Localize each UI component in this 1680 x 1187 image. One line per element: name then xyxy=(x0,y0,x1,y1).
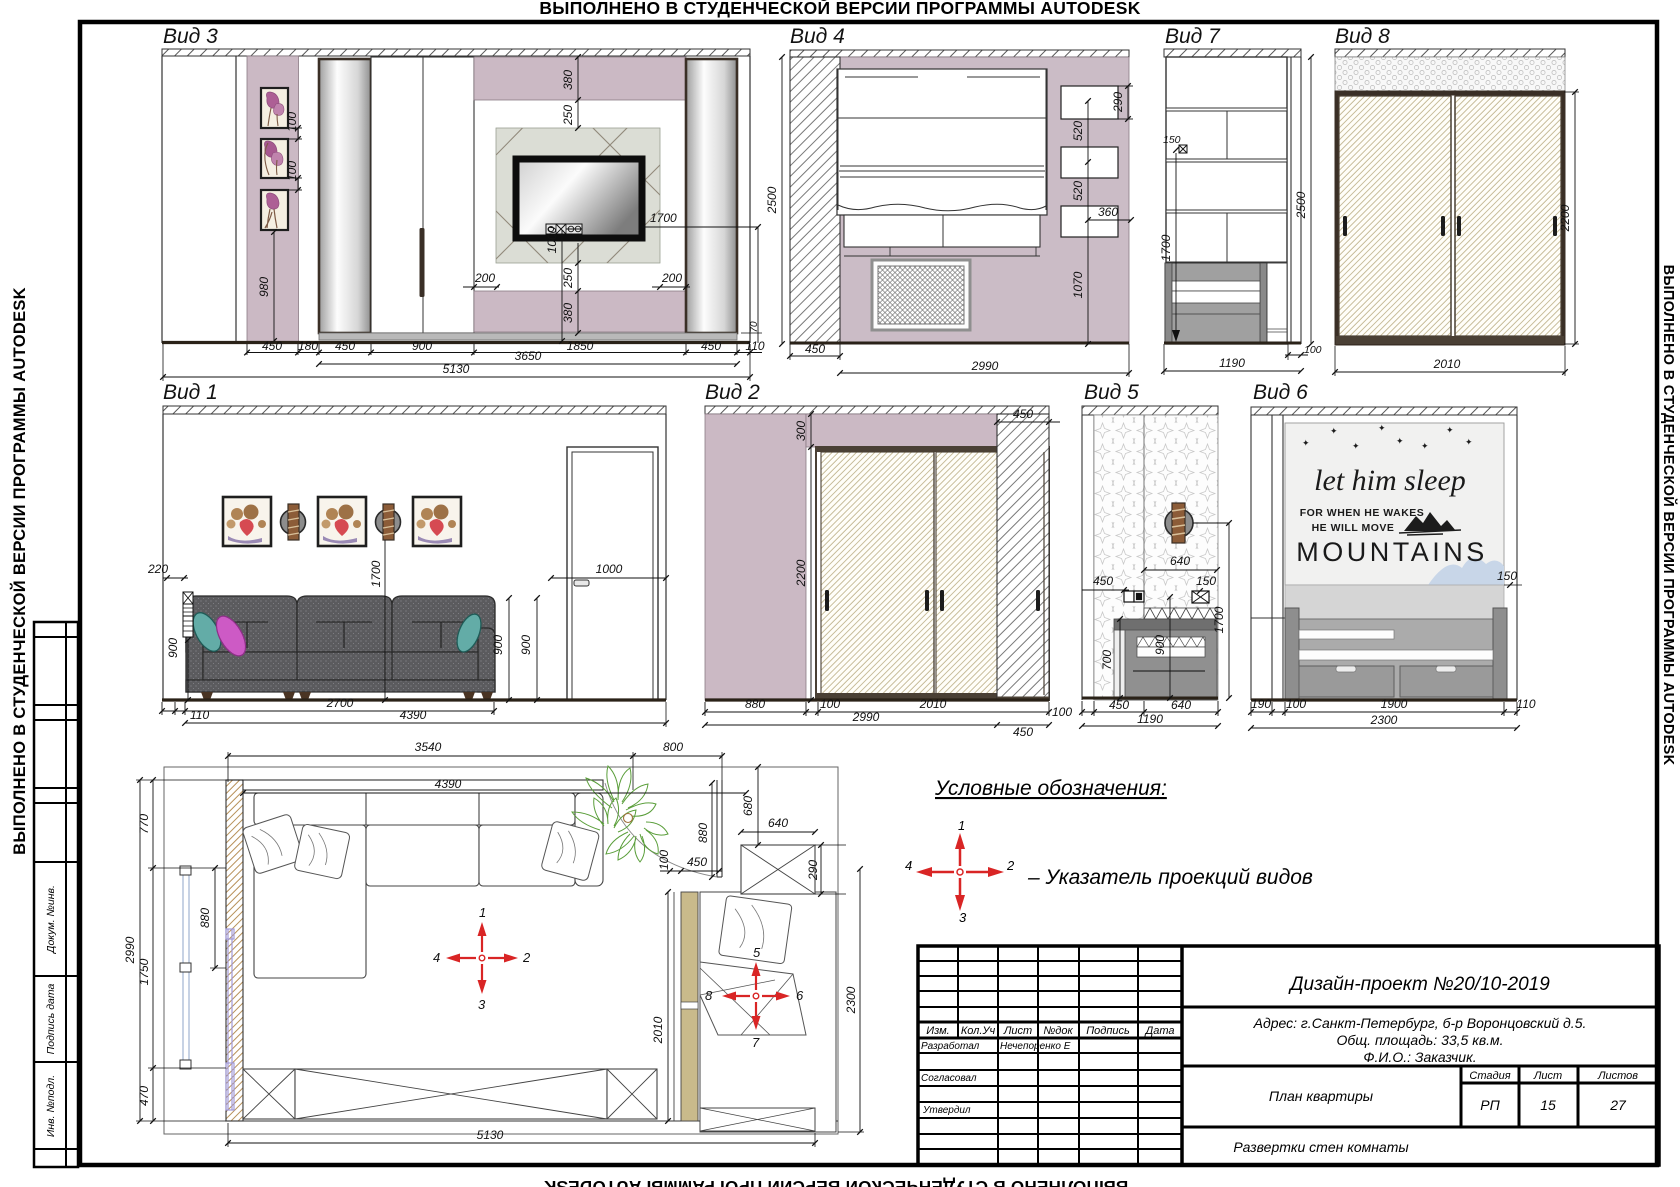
svg-text:70: 70 xyxy=(749,321,760,333)
svg-text:1900: 1900 xyxy=(1381,697,1408,711)
svg-text:290: 290 xyxy=(1111,92,1125,113)
svg-text:180: 180 xyxy=(298,339,318,353)
svg-text:3650: 3650 xyxy=(515,349,542,363)
svg-text:6: 6 xyxy=(796,988,804,1003)
svg-text:Лист: Лист xyxy=(1003,1025,1032,1037)
svg-text:ВЫПОЛНЕНО В СТУДЕНЧЕСКОЙ ВЕРСИ: ВЫПОЛНЕНО В СТУДЕНЧЕСКОЙ ВЕРСИИ ПРОГРАММ… xyxy=(543,1177,1128,1187)
svg-text:1700: 1700 xyxy=(1159,234,1173,261)
svg-text:2010: 2010 xyxy=(1433,357,1461,371)
svg-text:100: 100 xyxy=(1052,705,1072,719)
svg-text:450: 450 xyxy=(701,339,721,353)
svg-text:880: 880 xyxy=(198,908,212,928)
svg-text:450: 450 xyxy=(687,855,707,869)
svg-text:150: 150 xyxy=(1163,134,1181,146)
svg-text:900: 900 xyxy=(1153,635,1167,655)
svg-text:250: 250 xyxy=(561,268,575,289)
svg-text:ВЫПОЛНЕНО В СТУДЕНЧЕСКОЙ ВЕРСИ: ВЫПОЛНЕНО В СТУДЕНЧЕСКОЙ ВЕРСИИ ПРОГРАММ… xyxy=(1660,265,1678,766)
svg-text:РП: РП xyxy=(1480,1097,1500,1113)
svg-text:✦: ✦ xyxy=(1378,423,1386,433)
svg-text:980: 980 xyxy=(257,277,271,297)
svg-text:4: 4 xyxy=(905,858,912,873)
svg-text:Инв. №подл.: Инв. №подл. xyxy=(45,1075,57,1137)
svg-text:640: 640 xyxy=(768,816,788,830)
svg-text:1700: 1700 xyxy=(1212,606,1226,633)
svg-text:2300: 2300 xyxy=(844,986,858,1014)
svg-text:1000: 1000 xyxy=(596,562,623,576)
svg-text:100: 100 xyxy=(285,161,299,181)
svg-text:1750: 1750 xyxy=(137,958,151,985)
svg-text:190: 190 xyxy=(1251,697,1271,711)
svg-text:ВЫПОЛНЕНО В СТУДЕНЧЕСКОЙ ВЕРСИ: ВЫПОЛНЕНО В СТУДЕНЧЕСКОЙ ВЕРСИИ ПРОГРАММ… xyxy=(539,0,1140,18)
svg-text:100: 100 xyxy=(1286,697,1306,711)
svg-text:4390: 4390 xyxy=(400,708,427,722)
svg-text:Кол.Уч: Кол.Уч xyxy=(961,1025,996,1037)
svg-text:3: 3 xyxy=(478,997,486,1012)
svg-text:2200: 2200 xyxy=(1558,204,1572,232)
svg-text:110: 110 xyxy=(1516,697,1535,711)
svg-text:1700: 1700 xyxy=(650,211,677,225)
svg-text:2: 2 xyxy=(1006,858,1015,873)
svg-text:Утвердил: Утвердил xyxy=(922,1105,971,1116)
svg-text:1850: 1850 xyxy=(567,339,594,353)
svg-text:380: 380 xyxy=(561,70,575,90)
svg-text:Нечепоренко Е: Нечепоренко Е xyxy=(1000,1041,1071,1052)
svg-text:800: 800 xyxy=(663,740,683,754)
svg-text:250: 250 xyxy=(561,105,575,126)
svg-text:290: 290 xyxy=(806,860,820,881)
svg-text:✦: ✦ xyxy=(1330,426,1338,436)
svg-text:FOR WHEN HE WAKES: FOR WHEN HE WAKES xyxy=(1300,507,1425,519)
svg-text:4: 4 xyxy=(433,950,440,965)
svg-text:110: 110 xyxy=(190,708,209,722)
svg-text:MOUNTAINS: MOUNTAINS xyxy=(1296,537,1488,567)
svg-text:220: 220 xyxy=(147,562,168,576)
svg-text:100: 100 xyxy=(1304,344,1322,356)
svg-text:Разработал: Разработал xyxy=(921,1040,980,1052)
svg-text:Общ. площадь: 33,5 кв.м.: Общ. площадь: 33,5 кв.м. xyxy=(1336,1032,1503,1048)
svg-text:1700: 1700 xyxy=(369,560,383,587)
svg-text:Вид 1: Вид 1 xyxy=(163,381,218,404)
svg-text:5: 5 xyxy=(753,945,761,960)
svg-text:1070: 1070 xyxy=(1071,271,1085,298)
svg-text:900: 900 xyxy=(491,635,505,655)
svg-text:Ф.И.О.: Заказчик.: Ф.И.О.: Заказчик. xyxy=(1363,1049,1476,1065)
svg-text:7: 7 xyxy=(752,1035,760,1050)
svg-text:№док: №док xyxy=(1043,1025,1073,1037)
svg-text:Условные обозначения:: Условные обозначения: xyxy=(934,777,1167,800)
svg-text:Докум. №инв.: Докум. №инв. xyxy=(45,885,57,954)
svg-text:520: 520 xyxy=(1071,121,1085,141)
svg-text:Дата: Дата xyxy=(1143,1025,1174,1037)
svg-text:Стадия: Стадия xyxy=(1469,1070,1510,1082)
svg-text:200: 200 xyxy=(661,271,682,285)
svg-text:3540: 3540 xyxy=(415,740,442,754)
svg-text:Вид 5: Вид 5 xyxy=(1084,381,1139,404)
svg-text:450: 450 xyxy=(1013,725,1033,739)
svg-text:Подпись дата: Подпись дата xyxy=(45,984,57,1055)
svg-text:1: 1 xyxy=(479,905,486,920)
svg-text:110: 110 xyxy=(745,339,764,353)
svg-text:✦: ✦ xyxy=(1396,436,1404,446)
svg-text:150: 150 xyxy=(1497,569,1517,583)
svg-text:1190: 1190 xyxy=(1219,356,1245,370)
svg-text:Подпись: Подпись xyxy=(1086,1025,1130,1037)
svg-text:2990: 2990 xyxy=(123,936,137,964)
svg-text:let him sleep: let him sleep xyxy=(1314,464,1466,497)
svg-text:Вид 4: Вид 4 xyxy=(790,25,845,48)
svg-text:HE WILL MOVE: HE WILL MOVE xyxy=(1312,522,1395,534)
svg-text:2990: 2990 xyxy=(852,710,880,724)
svg-text:Вид 8: Вид 8 xyxy=(1335,25,1390,48)
svg-text:Вид 7: Вид 7 xyxy=(1165,25,1221,48)
svg-text:2300: 2300 xyxy=(1370,713,1398,727)
svg-text:360: 360 xyxy=(1098,205,1118,219)
svg-text:✦: ✦ xyxy=(1446,425,1454,435)
svg-text:2010: 2010 xyxy=(919,697,947,711)
svg-text:2990: 2990 xyxy=(971,359,999,373)
svg-text:450: 450 xyxy=(1109,698,1129,712)
svg-text:450: 450 xyxy=(1093,574,1113,588)
svg-text:ВЫПОЛНЕНО В СТУДЕНЧЕСКОЙ ВЕРСИ: ВЫПОЛНЕНО В СТУДЕНЧЕСКОЙ ВЕРСИИ ПРОГРАММ… xyxy=(10,287,29,855)
svg-text:900: 900 xyxy=(519,635,533,655)
svg-text:450: 450 xyxy=(805,342,825,356)
svg-text:470: 470 xyxy=(137,1086,151,1106)
svg-text:450: 450 xyxy=(335,339,355,353)
svg-text:200: 200 xyxy=(474,271,495,285)
svg-text:2700: 2700 xyxy=(326,696,354,710)
svg-text:640: 640 xyxy=(1171,698,1191,712)
svg-text:8: 8 xyxy=(705,988,713,1003)
svg-text:150: 150 xyxy=(1196,574,1216,588)
svg-text:27: 27 xyxy=(1609,1097,1627,1113)
svg-text:✦: ✦ xyxy=(1302,438,1310,448)
svg-text:– Указатель проекций видов: – Указатель проекций видов xyxy=(1027,866,1313,889)
svg-text:2010: 2010 xyxy=(651,1016,665,1044)
svg-text:Вид 2: Вид 2 xyxy=(705,381,760,404)
svg-text:2500: 2500 xyxy=(1294,191,1308,219)
svg-text:900: 900 xyxy=(166,638,180,658)
svg-text:680: 680 xyxy=(741,796,755,816)
svg-text:Вид 6: Вид 6 xyxy=(1253,381,1308,404)
svg-text:✦: ✦ xyxy=(1465,437,1473,447)
svg-text:700: 700 xyxy=(1100,650,1114,670)
svg-text:450: 450 xyxy=(1013,407,1033,421)
svg-text:2500: 2500 xyxy=(765,186,779,214)
svg-text:Изм.: Изм. xyxy=(926,1025,949,1037)
svg-text:5130: 5130 xyxy=(477,1128,504,1142)
svg-text:520: 520 xyxy=(1071,181,1085,201)
svg-text:Дизайн-проект №20/10-2019: Дизайн-проект №20/10-2019 xyxy=(1288,974,1550,995)
svg-text:Вид 3: Вид 3 xyxy=(163,25,218,48)
svg-text:✦: ✦ xyxy=(1421,441,1429,451)
svg-text:✦: ✦ xyxy=(1352,441,1360,451)
svg-text:100: 100 xyxy=(285,112,299,132)
svg-text:770: 770 xyxy=(137,814,151,834)
svg-text:2: 2 xyxy=(522,950,531,965)
svg-text:640: 640 xyxy=(1170,554,1190,568)
svg-text:4390: 4390 xyxy=(435,777,462,791)
svg-text:1: 1 xyxy=(958,818,965,833)
svg-text:300: 300 xyxy=(794,421,808,441)
svg-text:Лист: Лист xyxy=(1533,1070,1562,1082)
svg-text:900: 900 xyxy=(412,339,432,353)
svg-text:1190: 1190 xyxy=(1137,712,1163,726)
svg-text:Адрес: г.Санкт-Петербург, б-р: Адрес: г.Санкт-Петербург, б-р Воронцовск… xyxy=(1253,1015,1587,1031)
svg-text:880: 880 xyxy=(696,823,710,843)
svg-text:5130: 5130 xyxy=(443,362,470,376)
svg-text:2200: 2200 xyxy=(794,559,808,587)
svg-text:450: 450 xyxy=(262,339,282,353)
svg-text:Согласовал: Согласовал xyxy=(921,1073,977,1084)
svg-text:Развертки стен комнаты: Развертки стен комнаты xyxy=(1233,1139,1409,1155)
svg-text:380: 380 xyxy=(561,303,575,323)
svg-text:1000: 1000 xyxy=(545,226,559,253)
svg-text:880: 880 xyxy=(745,697,765,711)
svg-text:100: 100 xyxy=(657,850,671,870)
svg-text:План квартиры: План квартиры xyxy=(1269,1088,1374,1104)
svg-text:100: 100 xyxy=(820,697,840,711)
svg-text:3: 3 xyxy=(959,910,967,925)
svg-text:15: 15 xyxy=(1540,1097,1556,1113)
svg-text:Листов: Листов xyxy=(1597,1070,1638,1082)
